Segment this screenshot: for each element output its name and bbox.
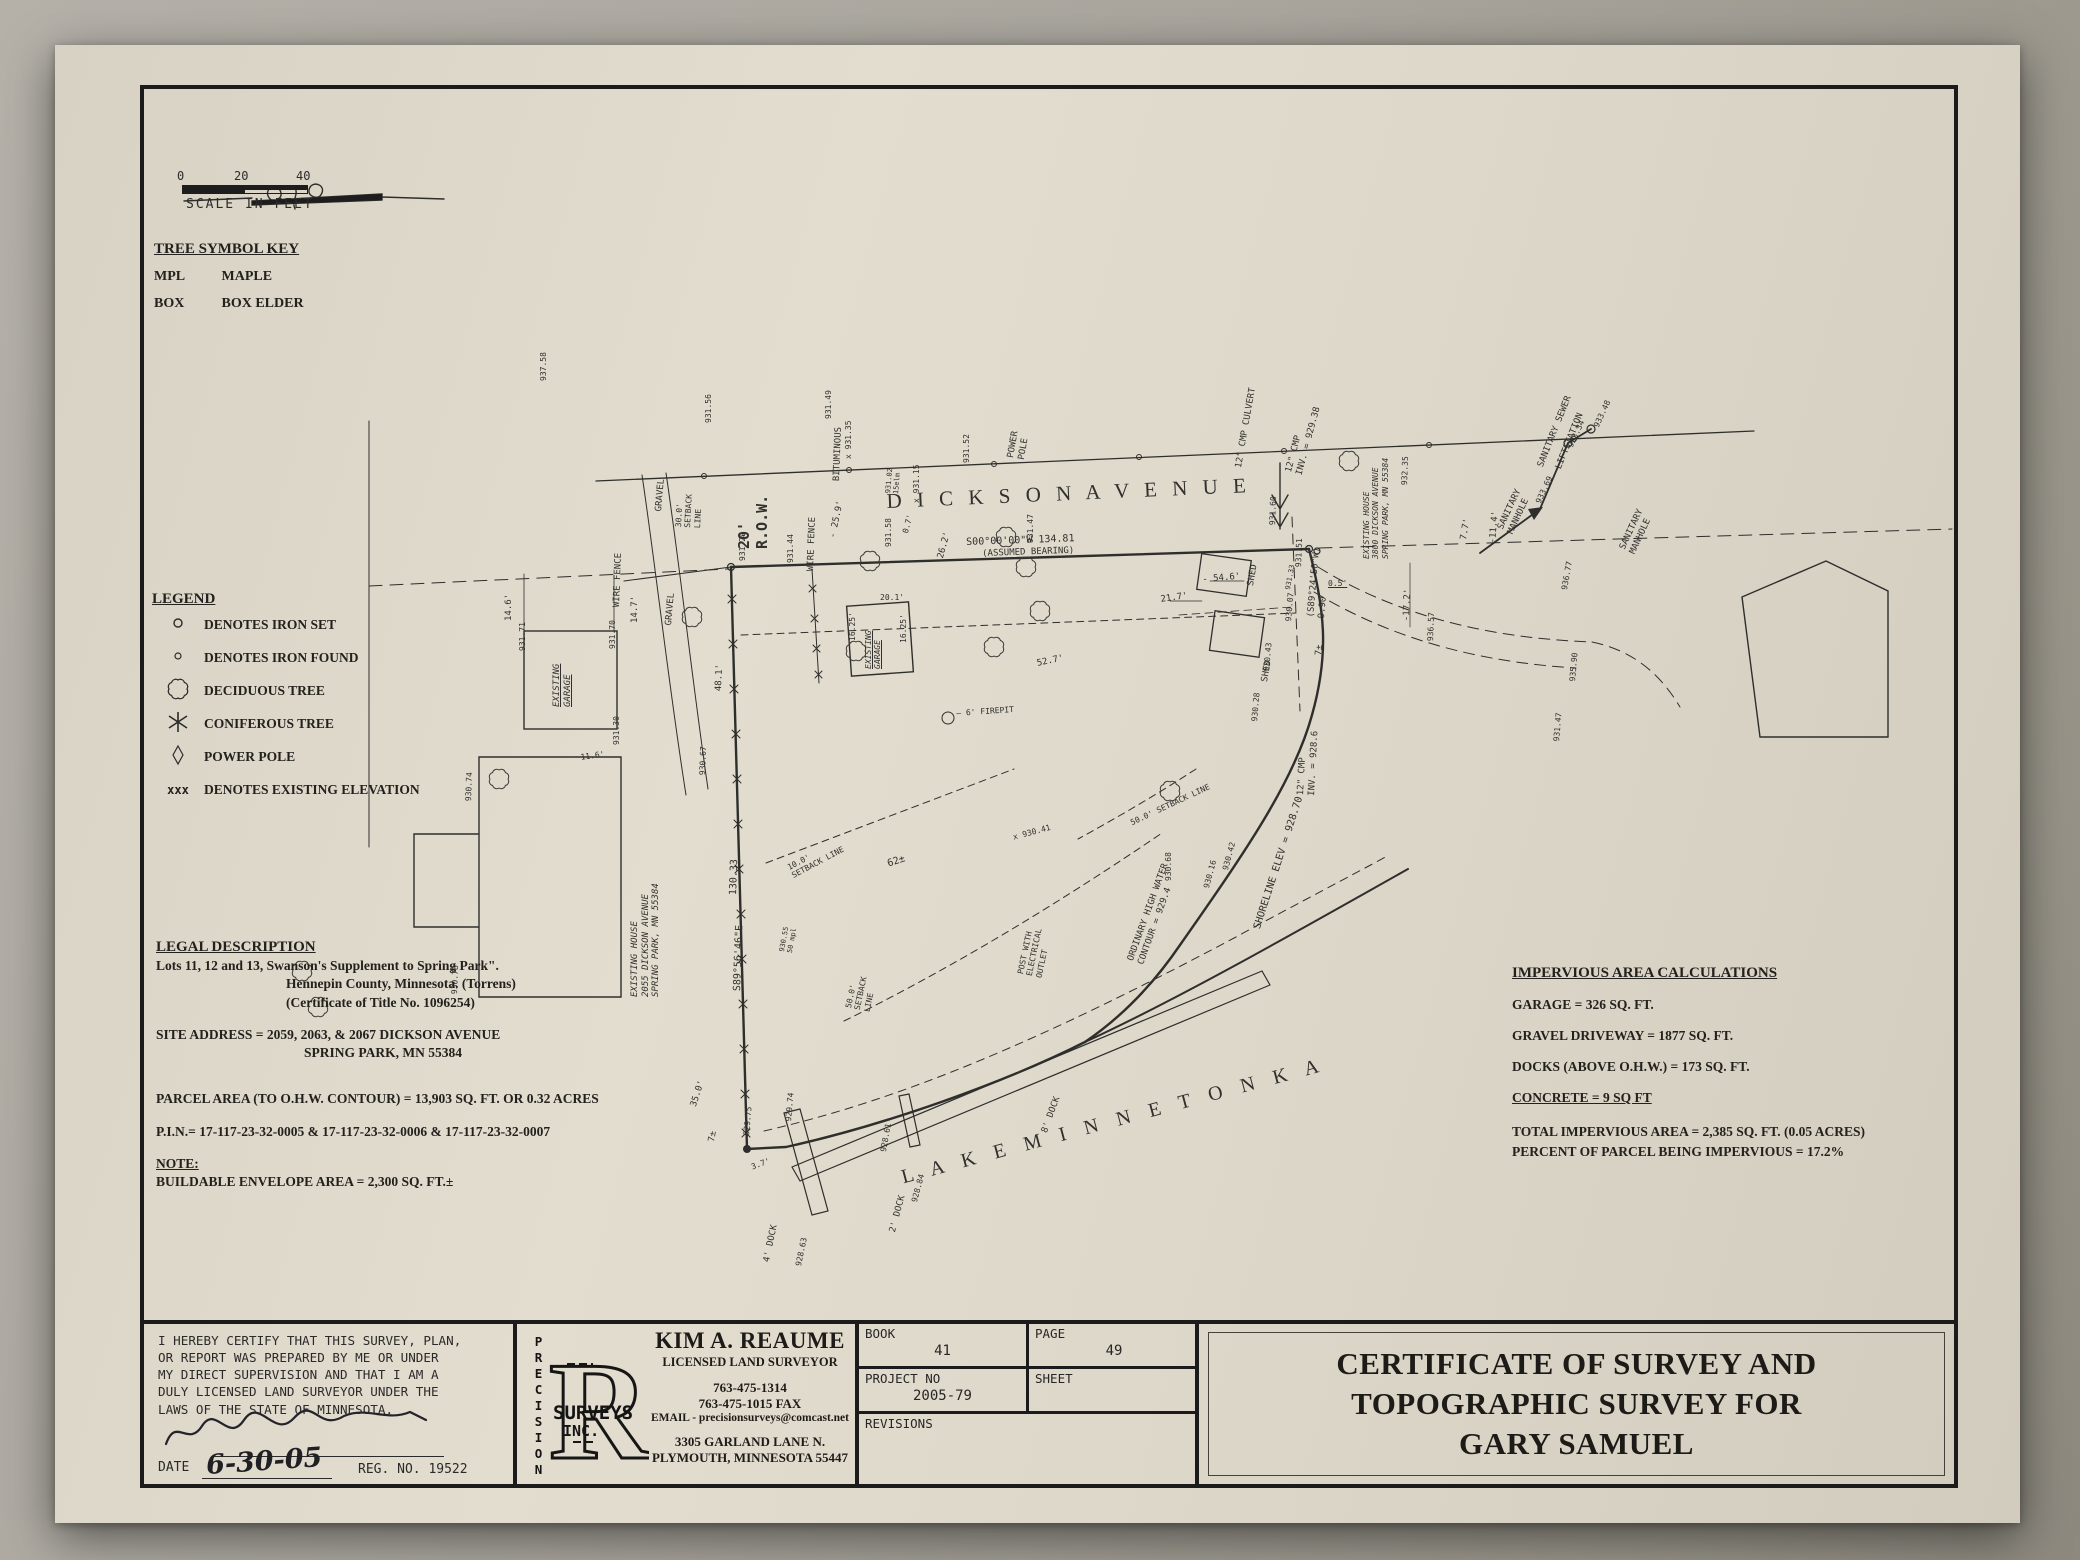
impervious-total: TOTAL IMPERVIOUS AREA = 2,385 SQ. FT. (0… xyxy=(1512,1124,1942,1140)
map-label: 48.1' xyxy=(714,664,726,691)
map-label: WIRE FENCE xyxy=(806,517,818,572)
legend-item: CONIFEROUS TREE xyxy=(152,707,420,740)
logo-inc-text: INC. xyxy=(563,1422,599,1440)
project-number: 2005-79 xyxy=(859,1388,1026,1404)
deciduous-tree-icon xyxy=(152,676,204,706)
buildable-envelope-note: BUILDABLE ENVELOPE AREA = 2,300 SQ. FT.± xyxy=(156,1173,626,1191)
precision-surveys-logo: R PRECISION SURVEYS INC. xyxy=(527,1330,649,1478)
legal-line: Hennepin County, Minnesota. (Torrens) xyxy=(286,975,626,993)
existing-garage-2-label: EXISTING GARAGE xyxy=(864,630,883,669)
map-label: 931.58 xyxy=(884,518,893,547)
impervious-gravel: GRAVEL DRIVEWAY = 1877 SQ. FT. xyxy=(1512,1028,1942,1044)
xxx-elevation-icon: xxx xyxy=(152,783,204,797)
revisions-cell: REVISIONS xyxy=(859,1414,1199,1480)
logo-precision-text: PRECISION xyxy=(531,1334,546,1478)
page-cell: PAGE 49 xyxy=(1029,1324,1199,1369)
title-line-1: CERTIFICATE OF SURVEY AND xyxy=(1336,1344,1816,1384)
impervious-docks: DOCKS (ABOVE O.H.W.) = 173 SQ. FT. xyxy=(1512,1059,1942,1075)
map-label: 930.67 xyxy=(698,746,708,775)
sheet-cell: SHEET xyxy=(1029,1369,1199,1414)
coniferous-tree-icon xyxy=(152,709,204,739)
map-label: 931.56 xyxy=(704,394,713,423)
legend-item: DENOTES IRON FOUND xyxy=(152,641,420,674)
logo-surveys-text: SURVEYS xyxy=(553,1402,633,1424)
map-label: x 931.35 xyxy=(844,420,853,459)
map-label: x 931.15 xyxy=(912,464,921,503)
map-label: 931.44 xyxy=(786,534,795,563)
map-label: 931.47 xyxy=(1026,514,1035,543)
scanned-survey-sheet: D I C K S O N A V E N U EL A K E M I N N… xyxy=(55,45,2020,1523)
iron-monument xyxy=(744,1146,751,1153)
legend-item: DECIDUOUS TREE xyxy=(152,674,420,707)
map-label: 930.74 xyxy=(464,772,474,801)
legal-title: LEGAL DESCRIPTION xyxy=(156,937,626,957)
map-label: 931.70 xyxy=(608,620,617,649)
impervious-garage: GARAGE = 326 SQ. FT. xyxy=(1512,997,1942,1013)
map-label: 0.5' xyxy=(1328,579,1347,588)
surveyor-title: LICENSED LAND SURVEYOR xyxy=(645,1355,855,1370)
parcel-west-line xyxy=(731,567,747,1149)
title-block: CERTIFICATE OF SURVEY AND TOPOGRAPHIC SU… xyxy=(1199,1324,1954,1484)
surveyor-fax: 763-475-1015 FAX xyxy=(645,1396,855,1412)
map-label: 12" CMP INV. = 928.6 xyxy=(1296,730,1321,796)
dock-4ft xyxy=(784,1109,828,1215)
deciduous-trees xyxy=(292,451,1358,1016)
map-label: 936.57 xyxy=(1426,612,1436,641)
parcel-east-line xyxy=(1085,549,1323,1042)
tree-symbol-key: TREE SYMBOL KEY MPL MAPLE BOX BOX ELDER xyxy=(154,241,304,312)
book-cell: BOOK 41 xyxy=(859,1324,1029,1369)
map-label: 931.60 xyxy=(1268,496,1278,525)
title-line-3: GARY SAMUEL xyxy=(1459,1424,1694,1464)
surveyor-address: PLYMOUTH, MINNESOTA 55447 xyxy=(645,1450,855,1466)
legal-description-block: LEGAL DESCRIPTION Lots 11, 12 and 13, Sw… xyxy=(156,937,626,1191)
map-label: 937.58 xyxy=(539,352,548,381)
cert-line: DULY LICENSED LAND SURVEYOR UNDER THE xyxy=(158,1383,503,1400)
cert-line: OR REPORT WAS PREPARED BY ME OR UNDER xyxy=(158,1349,503,1366)
existing-house-3800-label: EXISTING HOUSE 3800 DICKSON AVENUE SPRIN… xyxy=(1362,458,1390,559)
map-label: 16.25' xyxy=(899,614,908,643)
map-label: 7± xyxy=(707,1130,719,1143)
iron-found-icon xyxy=(152,647,204,669)
surveyor-email: EMAIL - precisionsurveys@comcast.net xyxy=(645,1412,855,1424)
scale-caption: SCALE IN FEET xyxy=(186,197,314,212)
impervious-percent: PERCENT OF PARCEL BEING IMPERVIOUS = 17.… xyxy=(1512,1144,1942,1160)
map-label: 930.68 xyxy=(1164,852,1173,881)
map-label: 16.25' xyxy=(848,612,857,641)
map-label: 932.35 xyxy=(1400,456,1410,485)
map-label: 130.33 xyxy=(728,859,741,896)
scale-tick-40: 40 xyxy=(296,169,310,183)
scale-bar xyxy=(182,185,308,194)
site-address-city: SPRING PARK, MN 55384 xyxy=(304,1044,626,1062)
map-label: BITUMINOUS xyxy=(832,427,844,482)
map-label: 931.29 xyxy=(738,532,747,561)
cert-line: I HEREBY CERTIFY THAT THIS SURVEY, PLAN, xyxy=(158,1332,503,1349)
existing-house-3800-outline xyxy=(1742,561,1888,737)
map-label: 14.6' xyxy=(504,594,515,621)
impervious-area-block: IMPERVIOUS AREA CALCULATIONS GARAGE = 32… xyxy=(1512,965,1942,1160)
page-number: 49 xyxy=(1029,1343,1199,1359)
pin-numbers: P.I.N.= 17-117-23-32-0005 & 17-117-23-32… xyxy=(156,1123,626,1141)
legal-line: (Certificate of Title No. 1096254) xyxy=(286,994,626,1012)
site-address: SITE ADDRESS = 2059, 2063, & 2067 DICKSO… xyxy=(156,1026,626,1044)
legend-item: DENOTES IRON SET xyxy=(152,608,420,641)
drawing-border: D I C K S O N A V E N U EL A K E M I N N… xyxy=(140,85,1958,1488)
scale-bar-assembly: 0 20 40 SCALE IN FEET xyxy=(166,125,466,255)
map-label: 7± xyxy=(1314,644,1326,656)
legal-line: Lots 11, 12 and 13, Swanson's Supplement… xyxy=(156,957,626,975)
map-label: -17.2' xyxy=(1402,589,1414,622)
map-label: 931.02 15elm xyxy=(884,468,903,495)
surveyor-logo-box: R PRECISION SURVEYS INC. KIM A. REAUME L… xyxy=(517,1324,859,1484)
certification-box: I HEREBY CERTIFY THAT THIS SURVEY, PLAN,… xyxy=(144,1324,517,1484)
surveyor-contact-block: KIM A. REAUME LICENSED LAND SURVEYOR 763… xyxy=(645,1328,855,1466)
iron-set-icon xyxy=(152,614,204,636)
scale-tick-0: 0 xyxy=(177,169,184,183)
handwritten-date: 6-30-05 xyxy=(205,1442,323,1481)
book-page-grid: BOOK 41 PAGE 49 PROJECT NO 2005-79 SHEET… xyxy=(859,1324,1199,1484)
tree-key-row: BOX BOX ELDER xyxy=(154,296,304,312)
bearing-west-line: S89°56'46"E xyxy=(732,925,746,992)
parcel-area: PARCEL AREA (TO O.H.W. CONTOUR) = 13,903… xyxy=(156,1090,626,1108)
cert-line: MY DIRECT SUPERVISION AND THAT I AM A xyxy=(158,1366,503,1383)
map-label: WIRE FENCE xyxy=(612,553,624,608)
map-label: 30.0' SETBACK LINE xyxy=(674,493,704,528)
scale-tick-20: 20 xyxy=(234,169,248,183)
existing-garage-label: EXISTING GARAGE xyxy=(552,664,573,707)
map-label: 14.7' xyxy=(630,596,641,623)
project-cell: PROJECT NO 2005-79 xyxy=(859,1369,1029,1414)
surveyor-phone: 763-475-1314 xyxy=(645,1380,855,1396)
date-label: DATE xyxy=(158,1460,189,1475)
map-label: 931.30 xyxy=(612,716,621,745)
title-line-2: TOPOGRAPHIC SURVEY FOR xyxy=(1351,1384,1802,1424)
book-number: 41 xyxy=(859,1343,1026,1359)
existing-house-2055-label: EXISTING HOUSE 2055 DICKSON AVENUE SPRIN… xyxy=(630,883,662,997)
map-label: 931.71 xyxy=(518,622,527,651)
signature-area: DATE 6-30-05 REG. NO. 19522 xyxy=(158,1410,498,1480)
impervious-title: IMPERVIOUS AREA CALCULATIONS xyxy=(1512,965,1942,982)
power-pole-icon xyxy=(152,743,204,771)
map-label: 931.51 xyxy=(1294,538,1304,567)
map-label: 20.1' xyxy=(880,593,904,602)
map-label: 931.49 xyxy=(824,390,833,419)
surveyor-address: 3305 GARLAND LANE N. xyxy=(645,1434,855,1450)
map-label: 931.52 xyxy=(962,434,971,463)
tree-key-row: MPL MAPLE xyxy=(154,269,304,285)
shed-outline xyxy=(1209,611,1264,658)
legend-item: xxx DENOTES EXISTING ELEVATION xyxy=(152,773,420,806)
registration-number: REG. NO. 19522 xyxy=(358,1462,468,1477)
legend: LEGEND DENOTES IRON SET DENOTES IRON FOU… xyxy=(152,591,420,806)
tree-key-title: TREE SYMBOL KEY xyxy=(154,241,304,258)
note-title: NOTE: xyxy=(156,1155,626,1173)
title-strip: I HEREBY CERTIFY THAT THIS SURVEY, PLAN,… xyxy=(144,1320,1954,1484)
firepit-circle xyxy=(942,712,954,724)
legend-title: LEGEND xyxy=(152,591,420,608)
legend-item: POWER POLE xyxy=(152,740,420,773)
impervious-concrete: CONCRETE = 9 SQ FT xyxy=(1512,1090,1942,1106)
surveyor-name: KIM A. REAUME xyxy=(645,1328,855,1354)
